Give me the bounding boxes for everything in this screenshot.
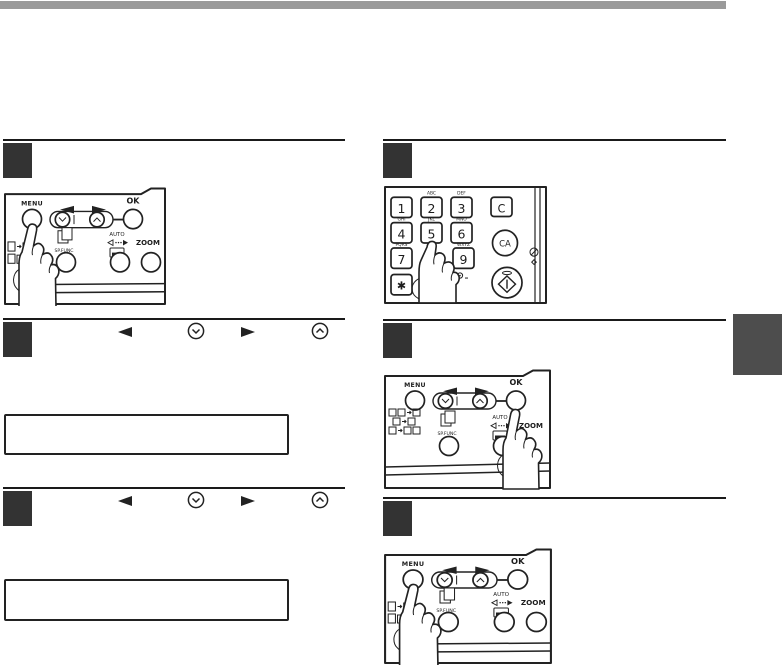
key-3-digit: 3 <box>458 201 466 216</box>
menu-label: MENU <box>21 200 43 207</box>
right-arrow-key-icon <box>240 326 256 338</box>
clear-all-key-label: CA <box>499 239 511 249</box>
step-rule <box>383 319 726 321</box>
down-key-art <box>437 573 452 587</box>
auto-label: AUTO <box>492 415 507 421</box>
key-2-digit: 2 <box>428 201 436 216</box>
key-5-letters: JKL <box>427 217 435 223</box>
down-key-art <box>55 212 69 227</box>
key-7-digit: 7 <box>398 252 406 267</box>
step-number-marker <box>383 501 412 536</box>
keypad-illustration-key5-press: ABC DEF 1 2 3 C GHI JKL MNO 4 5 6 CA PQR… <box>383 185 550 305</box>
section-edge-tab <box>733 314 782 375</box>
auto-label: AUTO <box>109 232 124 238</box>
manual-page: MENU OK SP.FUNC AUTO <box>0 0 782 668</box>
panel-illustration-ok-press: MENU OK SP.FUNC AUTO <box>383 368 553 490</box>
ok-button-art <box>508 570 528 589</box>
menu-label: MENU <box>404 382 426 389</box>
step-rule <box>383 497 726 499</box>
sp-func-button-art <box>440 437 459 456</box>
step-rule <box>3 139 345 141</box>
key-4-letters: GHI <box>398 217 406 223</box>
ok-button-art <box>507 391 526 410</box>
key-3-letters: DEF <box>457 191 466 197</box>
up-key-art <box>473 573 488 587</box>
step-number-marker <box>3 491 32 526</box>
zoom-label: ZOOM <box>136 238 160 247</box>
step-number-marker <box>383 323 412 358</box>
zoom-label: ZOOM <box>521 598 546 607</box>
key-6-digit: 6 <box>458 226 466 241</box>
key-7-letters: PQRS <box>396 242 408 248</box>
up-arrow-key-icon <box>311 491 329 509</box>
step-rule <box>383 139 726 141</box>
key-1-digit: 1 <box>398 201 406 216</box>
key-9-letters: WXYZ <box>457 242 470 248</box>
key-5-digit: 5 <box>428 226 436 241</box>
up-key-art <box>473 394 487 408</box>
step-number-marker <box>3 322 32 357</box>
display-screen-box <box>4 579 289 621</box>
auto-button-art <box>111 253 130 272</box>
down-key-art <box>438 394 452 408</box>
up-arrow-key-icon <box>311 322 329 340</box>
clear-key-label: C <box>498 202 506 215</box>
auto-label: AUTO <box>493 592 509 598</box>
menu-label: MENU <box>402 561 425 568</box>
step-rule <box>3 487 345 489</box>
down-arrow-key-icon <box>187 491 205 509</box>
key-9-digit: 9 <box>460 252 468 267</box>
ok-button-art <box>124 209 143 228</box>
key-2-letters: ABC <box>427 191 436 197</box>
step-number-marker <box>3 143 32 178</box>
key-4-digit: 4 <box>398 226 406 241</box>
panel-illustration-menu-press: MENU OK SP.FUNC AUTO ZOOM <box>383 547 553 665</box>
page-top-rule <box>0 1 726 9</box>
up-key-art <box>90 212 104 227</box>
menu-button-art <box>406 391 425 410</box>
key-6-letters: MNO <box>456 217 467 223</box>
start-key-icon <box>492 267 522 298</box>
zoom-button-art <box>527 613 547 632</box>
panel-illustration-menu-press: MENU OK SP.FUNC AUTO <box>3 186 167 306</box>
auto-button-art <box>494 613 514 632</box>
star-key-label: ✱ <box>397 280 406 293</box>
zoom-button-art <box>142 253 161 272</box>
ok-label: OK <box>511 556 525 566</box>
step-number-marker <box>383 143 412 178</box>
ok-label: OK <box>510 378 524 387</box>
down-arrow-key-icon <box>187 322 205 340</box>
ok-label: OK <box>127 196 141 205</box>
left-arrow-key-icon <box>117 326 133 338</box>
right-arrow-key-icon <box>240 495 256 507</box>
left-arrow-key-icon <box>117 495 133 507</box>
display-screen-box <box>4 414 289 455</box>
step-rule <box>3 318 345 320</box>
